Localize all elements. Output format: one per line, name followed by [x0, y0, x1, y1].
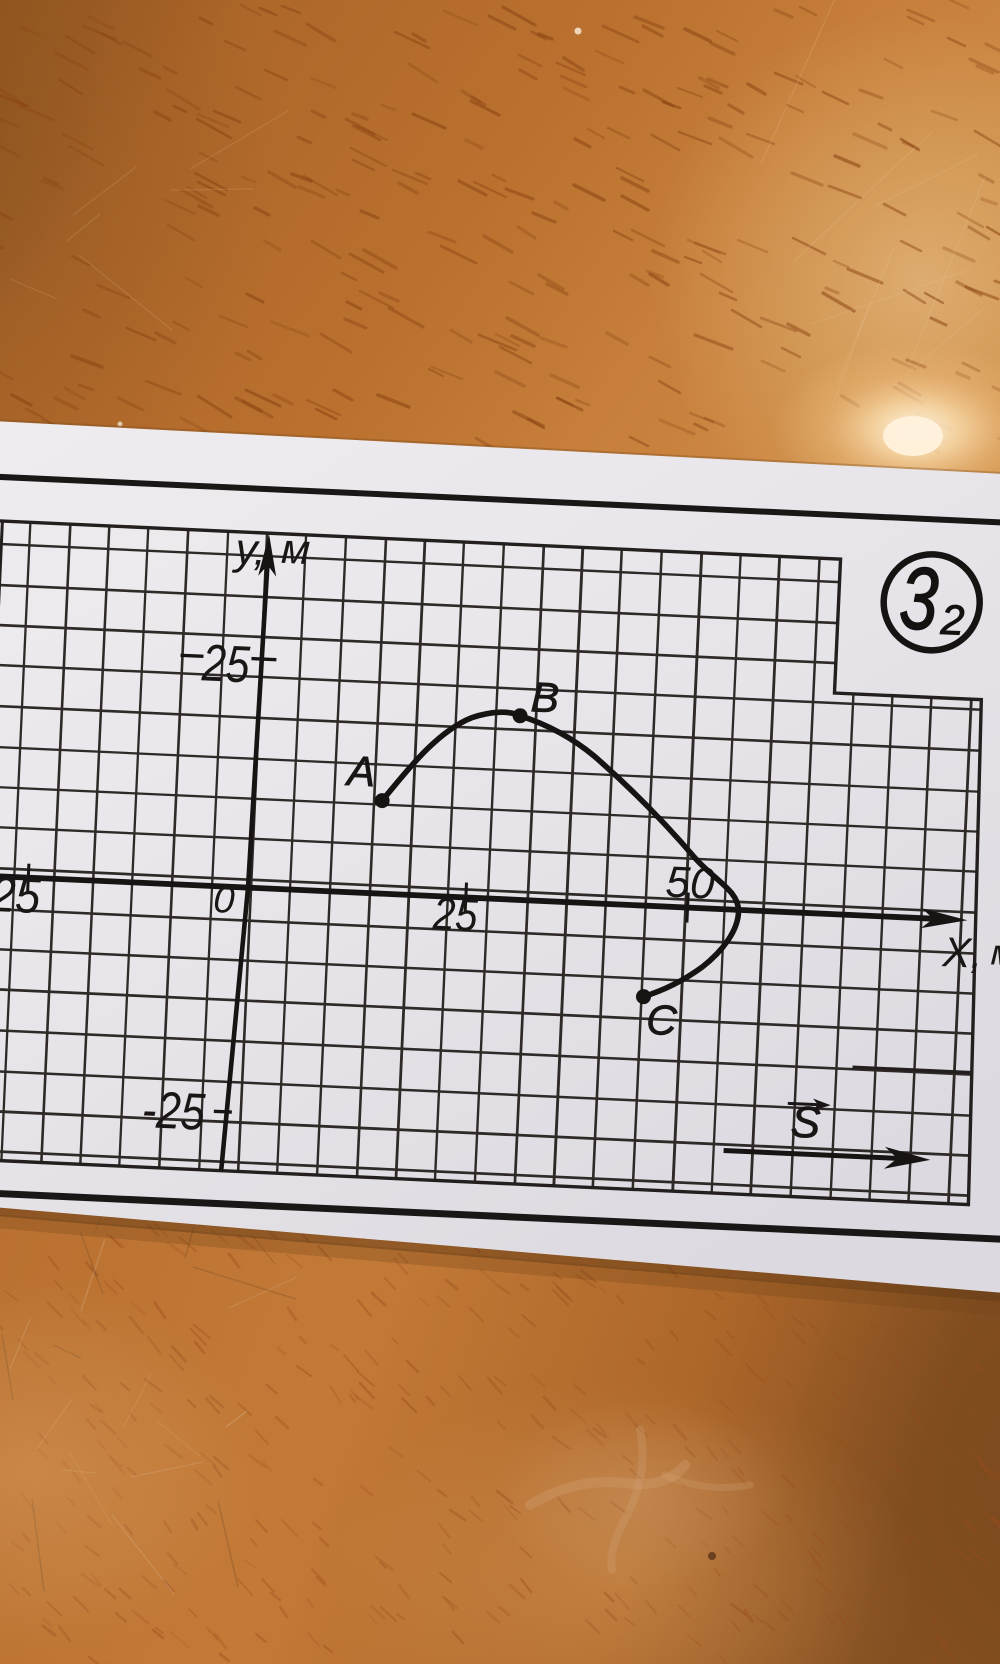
svg-text:0: 0	[212, 879, 235, 922]
svg-text:3: 3	[898, 549, 941, 649]
svg-text:2: 2	[939, 596, 965, 644]
svg-text:-25: -25	[0, 866, 42, 925]
svg-text:y,: y,	[231, 525, 267, 575]
svg-text:C: C	[645, 996, 678, 1044]
svg-text:-25: -25	[141, 1082, 207, 1142]
svg-text:B: B	[530, 673, 560, 721]
svg-text:X,: X,	[941, 928, 984, 977]
svg-text:м: м	[280, 525, 311, 573]
svg-text:50: 50	[665, 858, 717, 909]
svg-text:A: A	[343, 747, 376, 795]
svg-text:25: 25	[200, 634, 251, 694]
svg-text:м: м	[990, 931, 1000, 973]
svg-text:25: 25	[431, 888, 480, 941]
